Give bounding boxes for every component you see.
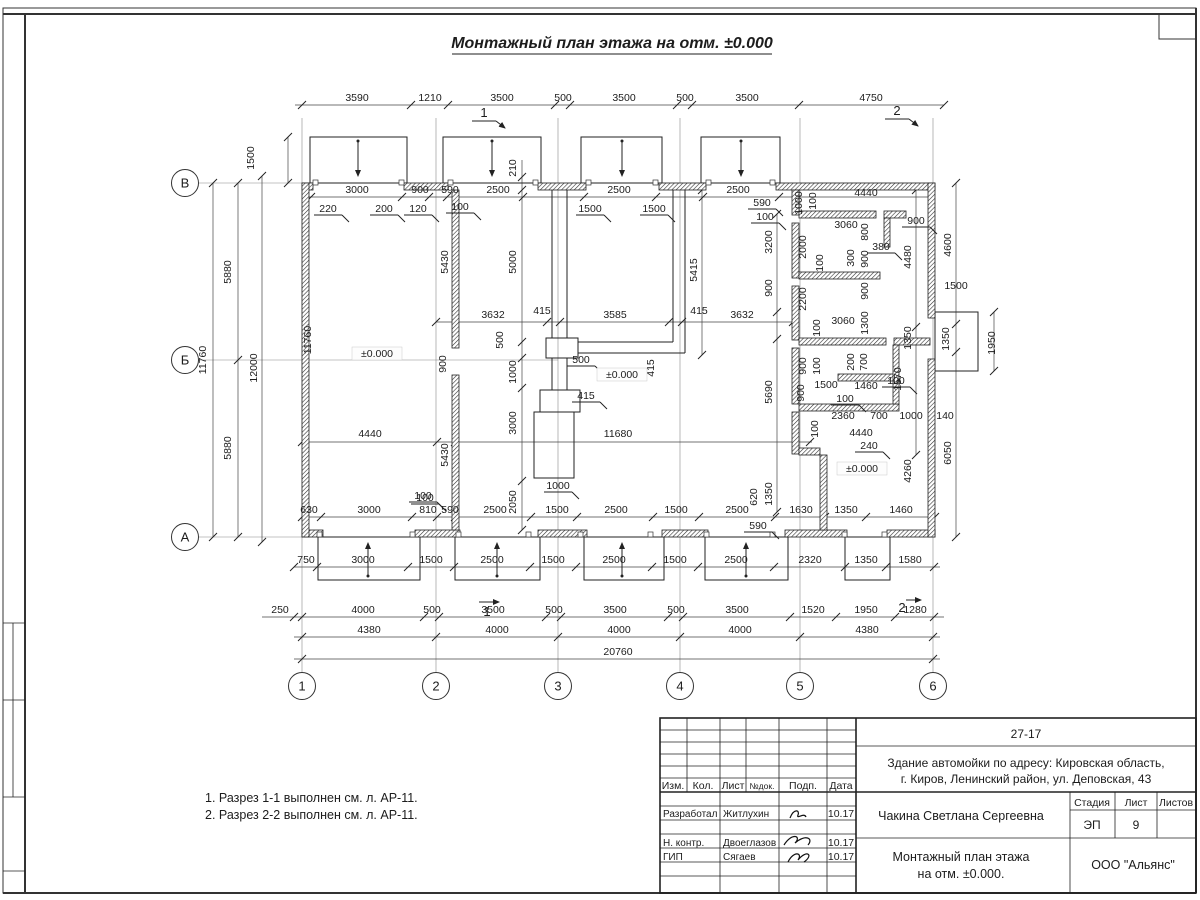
dim-label: 620 [748,488,760,506]
door-jamb [456,532,461,537]
dim-label: 1500 [664,504,688,516]
col-data: Дата [829,780,852,792]
dim-label: 415 [533,305,551,317]
axis-bubble-label: 4 [676,679,683,694]
page-title: Монтажный план этажа на отм. ±0.000 [451,35,773,52]
dim-label: 3632 [730,309,754,321]
door-jamb [586,180,591,185]
row-date-developed: 10.17 [828,808,854,820]
dim-label: 5000 [507,250,519,274]
dim-label: 4000 [351,604,375,616]
dim-label: 500 [667,604,685,616]
stage-value: ЭП [1083,818,1100,832]
leader-line [883,452,890,459]
leader-line [779,223,786,230]
sheets-label: Листов [1159,797,1194,809]
dim-label: 900 [795,384,807,402]
axis-bubble-label: Б [181,353,190,368]
dim-label: 1500 [419,554,443,566]
dim-label: 4000 [728,624,752,636]
dim-label: 500 [554,92,572,104]
dim-label: 11760 [302,326,314,355]
drawing-sheet: Монтажный план этажа на отм. ±0.000 1. Р… [0,0,1200,900]
dim-label: 4750 [859,92,883,104]
dim-label: 100 [414,490,432,502]
dim-label: 3590 [345,92,369,104]
dim-label: 5430 [439,443,451,467]
dim-label: 100 [756,211,774,223]
dim-label: 900 [907,215,925,227]
section-mark-label: 2 [893,103,900,118]
dim-label: 4480 [902,245,914,269]
dim-label: 590 [441,184,459,196]
col-ndok: №док. [750,781,775,791]
wall-segment [415,530,460,537]
organization-name: ООО "Альянс" [1091,858,1175,872]
door-jamb [770,180,775,185]
corner-code-box [1159,14,1196,39]
dim-label: 1460 [889,504,913,516]
dim-label: 12000 [248,353,260,382]
drawing-title-line1: Монтажный план этажа [893,850,1030,864]
dim-label: 3060 [834,219,858,231]
dim-label: 700 [858,353,870,371]
dim-label: 1500 [814,379,838,391]
door-jamb [706,180,711,185]
door-jamb [882,532,887,537]
title-block: 27-17 Здание автомойки по адресу: Кировс… [660,718,1196,893]
door-jamb [578,532,583,537]
dim-label: 2200 [797,287,809,311]
dim-label: 750 [297,554,315,566]
gate-swing-dot [357,140,360,143]
gate-swing-dot [621,140,624,143]
dim-label: 1210 [418,92,442,104]
dim-label: 590 [749,520,767,532]
leader-line [342,215,349,222]
dim-label: 3000 [345,184,369,196]
row-name-developed: Житлухин [723,809,769,820]
leader-line [604,215,611,222]
dim-label: 3500 [725,604,749,616]
dim-label: 4380 [357,624,381,636]
dim-label: 100 [836,393,854,405]
sheet-label: Лист [1125,797,1148,809]
dim-label: 1500 [541,554,565,566]
wall-segment [928,183,935,318]
note-1: 1. Разрез 1-1 выполнен см. л. АР-11. [205,791,418,805]
leader-line [398,215,405,222]
dim-label: 5880 [222,436,234,460]
dim-label: 590 [753,197,771,209]
dim-label: 200 [375,203,393,215]
dim-label: 100 [811,357,823,375]
dim-label: 2050 [507,490,519,514]
dim-label: 3500 [612,92,636,104]
axis-bubble-label: 6 [929,679,936,694]
dim-label: 2500 [607,184,631,196]
leader-line [572,492,579,499]
row-date-gip: 10.17 [828,851,854,863]
dim-label: 4380 [855,624,879,636]
dim-label: 1500 [642,203,666,215]
dim-label: 4440 [854,187,878,199]
dim-label: 1350 [902,326,914,350]
dim-label: 100 [807,192,819,210]
level-mark: ±0.000 [846,463,878,475]
dim-label: 11680 [604,428,633,440]
left-margin-stamp [3,623,25,871]
project-address-line1: Здание автомойки по адресу: Кировская об… [887,756,1164,770]
axis-bubble-label: 3 [554,679,561,694]
dim-label: 2360 [831,410,855,422]
dim-label: 900 [763,279,775,297]
author-name: Чакина Светлана Сергеевна [878,809,1044,823]
trench-pit [534,412,574,478]
row-name-ncontrol: Двоеглазов [723,838,776,849]
axis-bubble-label: А [181,530,190,545]
dim-label: 2000 [797,235,809,259]
dim-label: 415 [577,390,595,402]
dim-label: 1520 [801,604,825,616]
project-address-line2: г. Киров, Ленинский район, ул. Деповская… [901,772,1152,786]
dim-label: 630 [300,504,318,516]
gate-swing-dot [491,140,494,143]
dim-label: 1500 [578,203,602,215]
leader-line [600,402,607,409]
col-podp: Подп. [789,780,817,792]
col-izm: Изм. [662,780,685,792]
signature-developed [790,811,806,818]
dim-label: 500 [494,331,506,349]
leader-line [668,215,675,222]
dim-label: 210 [507,159,519,177]
row-name-gip: Сягаев [723,852,756,863]
wall-segment [659,183,706,190]
dim-label: 1950 [854,604,878,616]
dim-label: 3500 [603,604,627,616]
axis-bubble-label: В [181,176,190,191]
gate-swing-dot [740,140,743,143]
dim-label: 2500 [483,504,507,516]
dim-label: 900 [437,355,449,373]
wall-segment [302,183,309,537]
dim-label: 1580 [898,554,922,566]
dim-label: 2500 [480,554,504,566]
dim-label: 120 [409,203,427,215]
section-mark-label: 2 [898,600,905,615]
dim-label: 3200 [763,230,775,254]
section-mark-label: 1 [480,105,487,120]
dim-label: 4000 [607,624,631,636]
row-role-ncontrol: Н. контр. [663,838,704,849]
dim-label: 3000 [507,411,519,435]
dim-label: 100 [451,201,469,213]
dim-label: 3060 [831,315,855,327]
dim-label: 5430 [439,250,451,274]
door-jamb [648,532,653,537]
leader-line [474,213,481,220]
dim-label: 900 [859,282,871,300]
axis-bubble-label: 1 [298,679,305,694]
dim-label: 1350 [763,482,775,506]
wall-segment [792,412,799,454]
door-jamb [842,532,847,537]
note-2: 2. Разрез 2-2 выполнен см. л. АР-11. [205,808,418,822]
trench-pit [540,390,580,412]
wall-segment [928,359,935,537]
dim-label: 900 [859,250,871,268]
door-jamb [410,532,415,537]
dim-label: 1000 [507,360,519,384]
row-date-ncontrol: 10.17 [828,837,854,849]
door-jamb [317,532,322,537]
drawing-title-line2: на отм. ±0.000. [918,867,1005,881]
dim-label: 1350 [854,554,878,566]
dim-label: 250 [271,604,289,616]
gate-swing-dot [745,575,748,578]
wall-segment [820,455,827,530]
row-role-gip: ГИП [663,852,683,863]
dim-label: 200 [845,353,857,371]
dim-label: 590 [441,504,459,516]
sheet-number: 9 [1133,818,1140,832]
dim-label: 3000 [357,504,381,516]
leader-line [432,215,439,222]
dim-label: 1500 [663,554,687,566]
dim-label: 900 [411,184,429,196]
signature-ncontrol [784,836,810,845]
wall-segment [884,211,906,218]
dim-label: 2500 [604,504,628,516]
dim-label: 500 [545,604,563,616]
dim-label: 220 [319,203,337,215]
dim-label: 5880 [222,260,234,284]
dim-label: 380 [872,241,890,253]
dim-label: 1280 [903,604,927,616]
dim-label: 415 [690,305,708,317]
wall-segment [785,530,847,537]
wall-segment [662,530,708,537]
door-jamb [399,180,404,185]
dim-label: 1300 [859,311,871,335]
dim-label: 900 [797,357,809,375]
gate-swing-dot [367,575,370,578]
dim-label: 300 [845,249,857,267]
section-mark-arrow [909,119,918,126]
dim-label: 500 [572,354,590,366]
dim-label: 800 [859,223,871,241]
wall-segment [799,338,886,345]
axis-bubble-label: 2 [432,679,439,694]
dim-label: 2500 [726,184,750,196]
dim-label: 700 [870,410,888,422]
dim-label: 810 [419,504,437,516]
dim-label: 500 [423,604,441,616]
dim-label: 1000 [546,480,570,492]
dim-label: 1630 [789,504,813,516]
dim-label: 1950 [986,331,998,355]
level-mark: ±0.000 [361,348,393,360]
dim-label: 2320 [798,554,822,566]
project-code: 27-17 [1011,727,1042,741]
dim-label: 1000 [899,410,923,422]
dim-label: 4440 [358,428,382,440]
wall-segment [452,190,459,348]
dim-label: 2500 [724,554,748,566]
dim-label: 100 [809,420,821,438]
wall-segment [538,183,586,190]
wall-segment [799,211,876,218]
section-mark-arrow [496,121,505,128]
door-jamb [526,532,531,537]
dim-label: 4600 [942,233,954,257]
dim-label: 1500 [545,504,569,516]
dim-label: 3585 [603,309,627,321]
dim-label: 140 [936,410,954,422]
leader-line [895,253,902,260]
door-jamb [313,180,318,185]
dim-label: 4260 [902,459,914,483]
dim-label: 100 [814,254,826,272]
dim-label: 100 [887,375,905,387]
dim-label: 3632 [481,309,505,321]
section-mark-label: 1 [483,604,490,619]
dim-label: 4000 [485,624,509,636]
door-jamb [704,532,709,537]
dim-label: 6050 [942,441,954,465]
col-list: Лист [722,780,745,792]
dim-label: 1460 [854,380,878,392]
axis-bubble-label: 5 [796,679,803,694]
dim-label: 4440 [849,427,873,439]
dim-label: 5415 [688,258,700,282]
dim-label: 3500 [735,92,759,104]
gate-swing-dot [621,575,624,578]
dim-label: 1500 [245,146,257,170]
dim-label: 2500 [486,184,510,196]
door-jamb [653,180,658,185]
dim-label: 5690 [763,380,775,404]
dim-label: 3500 [490,92,514,104]
plan-geometry: 3590121035005003500500350047503000900590… [172,92,999,700]
wall-segment [799,272,880,279]
dim-label: 3000 [351,554,375,566]
signature-gip [788,854,809,862]
dim-label: 1500 [944,280,968,292]
dim-label: 2500 [725,504,749,516]
row-role-developed: Разработал [663,808,718,820]
dim-label: 1350 [940,327,952,351]
dim-label: 100 [811,319,823,337]
dim-label: 2500 [602,554,626,566]
gate-swing-dot [496,575,499,578]
col-kol: Кол. [693,780,714,792]
dim-label: 240 [860,440,878,452]
level-mark: ±0.000 [606,369,638,381]
dim-label: 500 [676,92,694,104]
floor-plan-drawing: Монтажный план этажа на отм. ±0.000 1. Р… [0,0,1200,900]
door-jamb [533,180,538,185]
dim-label: 1000 [793,191,805,215]
stage-label: Стадия [1074,797,1110,809]
wall-segment [799,448,820,455]
dim-label: 20760 [603,646,632,658]
dim-label: 1350 [834,504,858,516]
